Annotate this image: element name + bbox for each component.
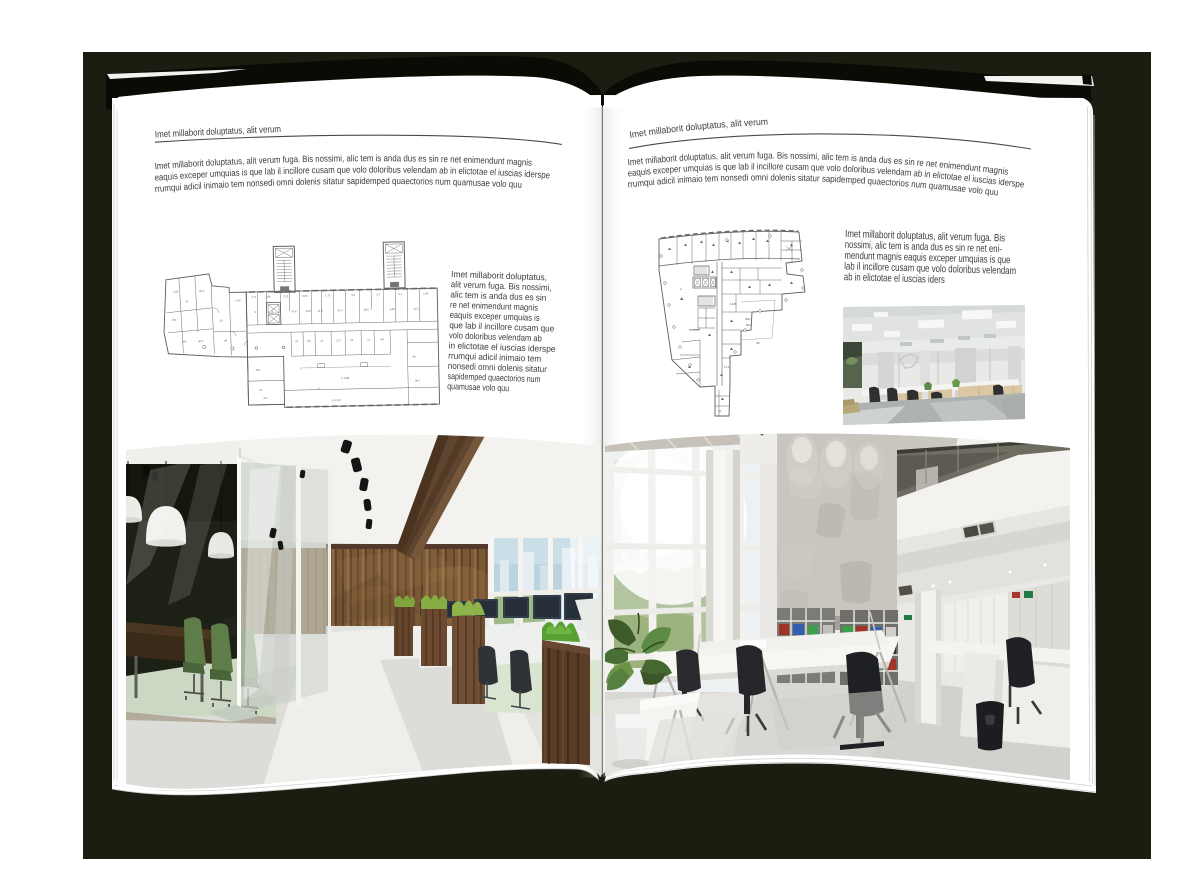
svg-text:68.2: 68.2 bbox=[746, 323, 752, 327]
svg-text:3.09: 3.09 bbox=[302, 294, 308, 298]
svg-text:4.06: 4.06 bbox=[390, 307, 396, 311]
svg-text:2.06: 2.06 bbox=[173, 290, 179, 294]
svg-text:/05: /05 bbox=[756, 341, 760, 345]
svg-text:4.1: 4.1 bbox=[398, 292, 402, 296]
svg-text:1.56: 1.56 bbox=[235, 298, 241, 302]
svg-text:11.8: 11.8 bbox=[318, 309, 323, 313]
svg-text:14.86: 14.86 bbox=[730, 302, 737, 306]
svg-text:2.80: 2.80 bbox=[265, 295, 271, 299]
svg-text:6.1: 6.1 bbox=[718, 409, 722, 413]
svg-text:A: A bbox=[680, 287, 682, 291]
svg-text:1=0.88: 1=0.88 bbox=[341, 376, 350, 380]
svg-text:4.8: 4.8 bbox=[380, 337, 384, 341]
svg-text:28.6: 28.6 bbox=[364, 308, 370, 312]
svg-text:10a: 10a bbox=[172, 318, 177, 322]
svg-text:30.7: 30.7 bbox=[415, 378, 421, 382]
svg-text:3.8: 3.8 bbox=[351, 293, 355, 297]
svg-text:30.2: 30.2 bbox=[199, 289, 205, 293]
svg-text:31.7: 31.7 bbox=[263, 396, 269, 400]
svg-text:2.10: 2.10 bbox=[283, 294, 289, 298]
svg-text:11.6: 11.6 bbox=[292, 309, 297, 313]
svg-text:17.2: 17.2 bbox=[724, 365, 730, 369]
svg-text:8.2: 8.2 bbox=[307, 339, 311, 343]
svg-text:2.9: 2.9 bbox=[376, 292, 380, 296]
svg-text:10.2: 10.2 bbox=[414, 306, 420, 310]
svg-text:40.2: 40.2 bbox=[198, 339, 204, 343]
svg-text:7.3: 7.3 bbox=[366, 338, 370, 342]
svg-text:2.75: 2.75 bbox=[251, 295, 257, 299]
svg-text:15.5: 15.5 bbox=[338, 308, 344, 312]
svg-text:1.45: 1.45 bbox=[423, 291, 429, 295]
svg-text:t500: t500 bbox=[745, 317, 751, 321]
svg-text:25a: 25a bbox=[256, 368, 261, 372]
svg-text:200: 200 bbox=[182, 339, 187, 343]
svg-text:12.8: 12.8 bbox=[306, 309, 312, 313]
svg-text:5.75: 5.75 bbox=[325, 293, 331, 297]
svg-text:2-nf 007: 2-nf 007 bbox=[331, 398, 341, 402]
svg-text:11.7: 11.7 bbox=[336, 338, 341, 342]
